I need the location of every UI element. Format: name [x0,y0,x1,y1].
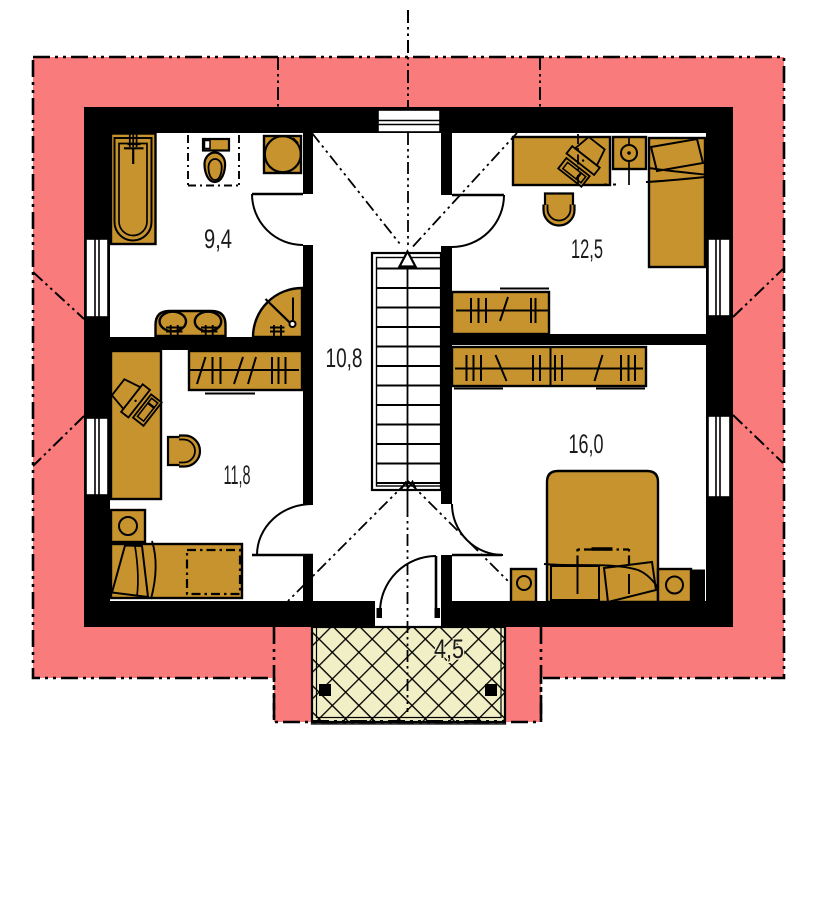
svg-text:12,5: 12,5 [571,234,603,264]
svg-text:16,0: 16,0 [569,429,604,459]
svg-text:10,8: 10,8 [326,343,363,373]
svg-text:11,8: 11,8 [224,460,251,490]
svg-text:9,4: 9,4 [204,224,232,254]
svg-text:4,5: 4,5 [434,634,464,664]
